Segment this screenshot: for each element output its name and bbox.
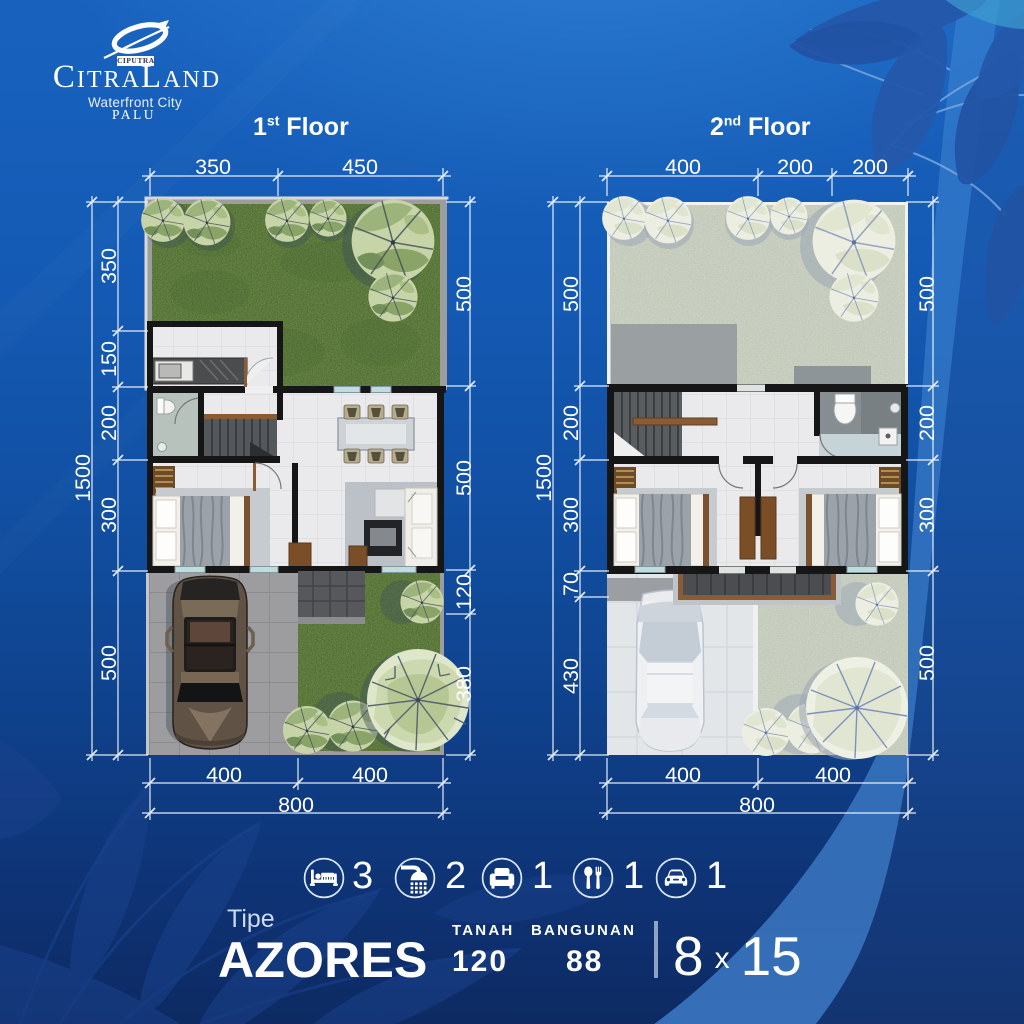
svg-text:70: 70 [559,572,583,596]
svg-text:500: 500 [97,645,121,681]
svg-text:1500: 1500 [71,454,95,502]
svg-text:400: 400 [352,763,388,787]
svg-text:400: 400 [815,763,851,787]
svg-text:1500: 1500 [532,454,556,502]
svg-text:800: 800 [278,793,314,817]
svg-text:500: 500 [452,460,476,496]
svg-text:380: 380 [452,666,476,702]
svg-text:300: 300 [915,497,939,533]
svg-text:200: 200 [777,155,813,179]
svg-text:200: 200 [97,405,121,441]
svg-text:300: 300 [559,497,583,533]
svg-text:350: 350 [97,248,121,284]
svg-text:200: 200 [915,405,939,441]
svg-text:430: 430 [559,658,583,694]
svg-text:400: 400 [665,155,701,179]
svg-text:800: 800 [739,793,775,817]
svg-text:500: 500 [915,645,939,681]
svg-text:500: 500 [915,276,939,312]
svg-text:350: 350 [195,155,231,179]
svg-text:450: 450 [342,155,378,179]
svg-text:200: 200 [852,155,888,179]
svg-text:150: 150 [97,341,121,377]
svg-text:500: 500 [452,276,476,312]
svg-text:500: 500 [559,276,583,312]
svg-text:400: 400 [206,763,242,787]
svg-text:120: 120 [452,574,476,610]
svg-text:200: 200 [559,405,583,441]
svg-text:400: 400 [665,763,701,787]
svg-text:300: 300 [97,497,121,533]
